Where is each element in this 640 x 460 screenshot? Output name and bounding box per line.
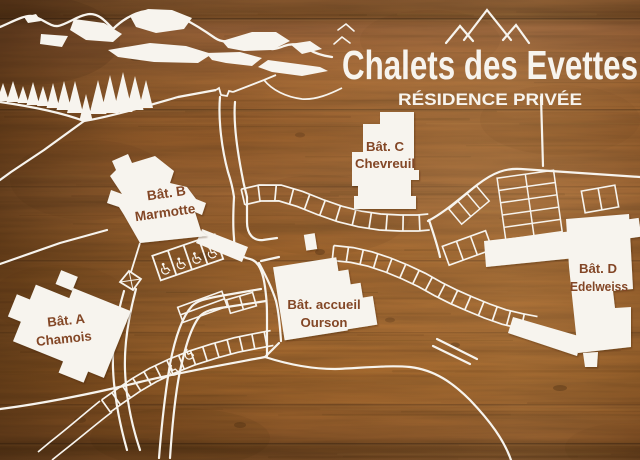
svg-text:Bât. D: Bât. D [579,261,617,276]
svg-text:Chalets des Evettes: Chalets des Evettes [342,42,638,88]
svg-text:RÉSIDENCE PRIVÉE: RÉSIDENCE PRIVÉE [398,90,582,109]
svg-text:Bât. accueil: Bât. accueil [287,297,360,312]
svg-text:Edelweiss: Edelweiss [570,279,628,294]
svg-text:Bât. C: Bât. C [366,139,405,154]
svg-text:Ourson: Ourson [301,315,348,330]
svg-text:Chevreuil: Chevreuil [355,156,415,171]
